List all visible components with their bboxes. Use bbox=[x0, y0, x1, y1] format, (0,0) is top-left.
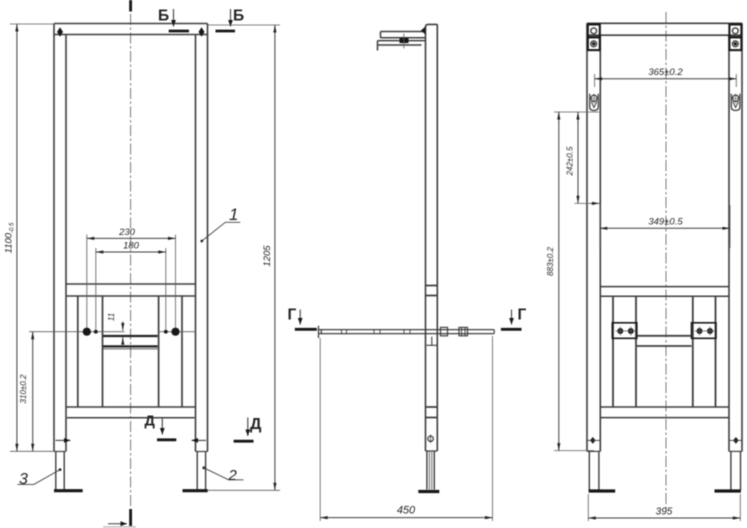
svg-text:Б: Б bbox=[158, 8, 169, 25]
svg-text:Г: Г bbox=[288, 307, 297, 324]
svg-text:Б: Б bbox=[233, 8, 244, 25]
svg-text:883±0.2: 883±0.2 bbox=[546, 247, 555, 276]
svg-text:1: 1 bbox=[229, 205, 238, 224]
svg-text:230: 230 bbox=[118, 227, 136, 238]
svg-text:349±0.5: 349±0.5 bbox=[648, 217, 683, 228]
svg-text:3: 3 bbox=[19, 471, 28, 488]
svg-text:Д: Д bbox=[145, 414, 156, 430]
svg-text:2: 2 bbox=[228, 467, 238, 484]
svg-text:Г: Г bbox=[518, 307, 527, 324]
svg-text:395: 395 bbox=[656, 507, 673, 518]
svg-text:365±0.2: 365±0.2 bbox=[648, 67, 683, 78]
svg-text:242±0.5: 242±0.5 bbox=[566, 146, 575, 176]
svg-text:180: 180 bbox=[123, 241, 140, 252]
svg-text:450: 450 bbox=[397, 505, 416, 517]
svg-text:Д: Д bbox=[250, 416, 262, 433]
svg-text:1205: 1205 bbox=[262, 245, 273, 267]
svg-text:1100-0.5: 1100-0.5 bbox=[4, 222, 16, 253]
svg-text:11: 11 bbox=[107, 313, 116, 321]
svg-text:310±0.2: 310±0.2 bbox=[19, 374, 28, 403]
